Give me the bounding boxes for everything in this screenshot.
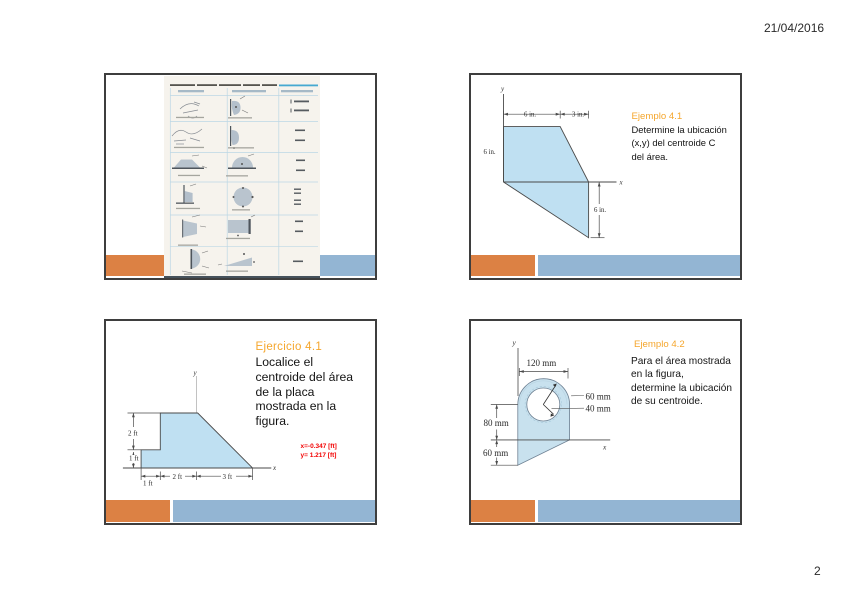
svg-text:6 in.: 6 in. (594, 207, 606, 214)
svg-text:3 in.: 3 in. (572, 112, 584, 119)
svg-text:60 mm: 60 mm (483, 448, 508, 458)
svg-text:y: y (500, 85, 505, 93)
svg-text:6 in.: 6 in. (524, 112, 536, 119)
svg-text:60 mm: 60 mm (586, 391, 611, 401)
svg-text:y: y (512, 338, 517, 347)
svg-text:2 ft: 2 ft (173, 472, 183, 480)
svg-text:1 ft: 1 ft (129, 454, 139, 462)
svg-text:x: x (602, 442, 607, 451)
svg-text:6 in.: 6 in. (484, 149, 496, 156)
svg-text:120 mm: 120 mm (527, 358, 557, 368)
svg-text:y: y (193, 369, 198, 377)
svg-text:80 mm: 80 mm (484, 418, 509, 428)
svg-text:3 ft: 3 ft (223, 472, 233, 480)
svg-text:40 mm: 40 mm (586, 403, 611, 413)
svg-text:1 ft: 1 ft (143, 479, 153, 487)
svg-text:2 ft: 2 ft (128, 429, 138, 437)
svg-text:x: x (272, 464, 277, 472)
svg-text:x: x (619, 179, 624, 187)
